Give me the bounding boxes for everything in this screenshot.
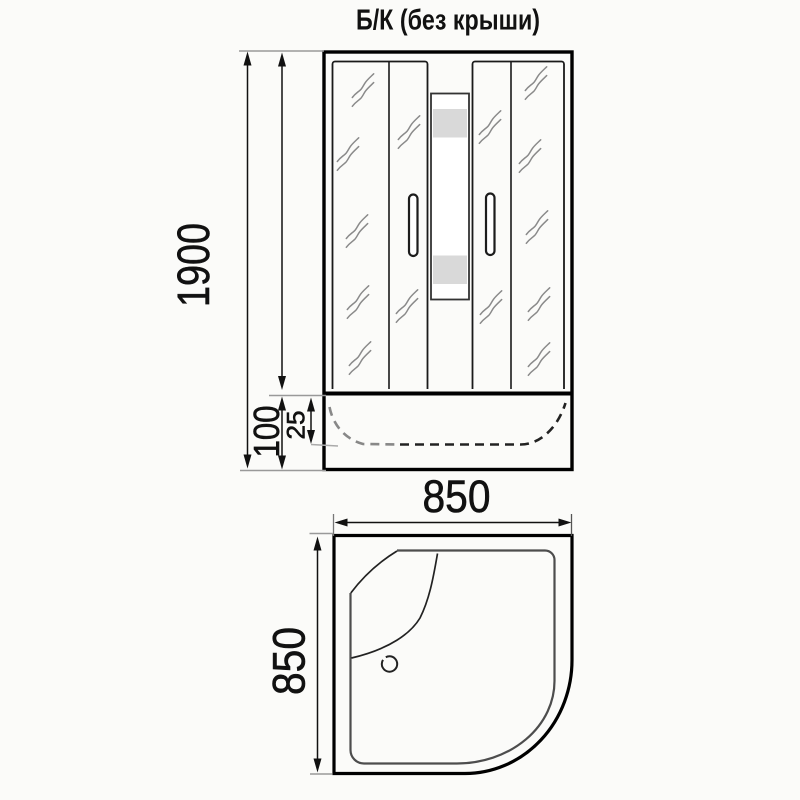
svg-text:25: 25: [283, 411, 311, 440]
svg-text:1900: 1900: [168, 223, 219, 307]
svg-text:100: 100: [246, 406, 287, 458]
svg-text:850: 850: [264, 627, 315, 695]
svg-text:850: 850: [423, 471, 491, 522]
svg-text:Б/К (без крыши): Б/К (без крыши): [356, 5, 540, 37]
